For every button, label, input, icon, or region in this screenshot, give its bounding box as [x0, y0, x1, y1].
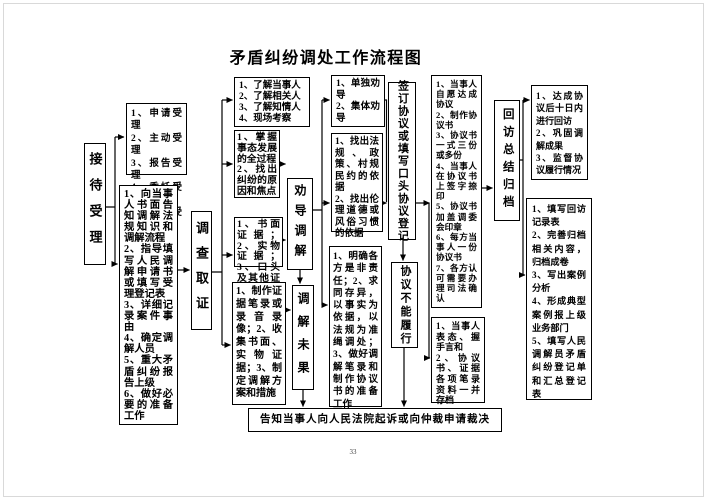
flowchart-title: 矛盾纠纷调处工作流程图: [196, 44, 456, 64]
investigation-goals-box: 1、掌握事态发展的全过程 2、找出纠纷的原因和焦点: [234, 130, 280, 198]
stage-investigation-box: 调查取证: [191, 211, 212, 330]
stage-followup-label: 回访总结归档: [501, 108, 513, 213]
stage-reception-box: 接待受理: [84, 143, 106, 265]
stage-followup-box: 回访总结归档: [494, 100, 520, 221]
reception-tasks-box: 1、向当事人书面告知调解法规知识和调解流程 2、指导填写人民调解申请书或填写受理…: [119, 185, 178, 425]
stage-sign-agreement-box: 签订协议或填写口头协议登记: [388, 82, 416, 240]
mediation-principles-box: 1、明确各方是非责任；2、求同存异，以事实为依据，以法规为准绳调处；3、做好调解…: [329, 246, 382, 407]
agreement-steps-box: 1、当事人自愿达成协议 2、制作协议书 3、协议书一式三份或多份 4、当事人在协…: [431, 75, 482, 308]
stage-mediation-failed-box: 调解未果: [292, 285, 314, 390]
archive-materials-box: 1、当事人表态、握手言和 2、协议书、证据各项笔录资料一并存档: [431, 317, 485, 403]
stage-persuasion-label: 劝导调解: [294, 184, 306, 264]
persuasion-methods-box: 1、单独劝导 2、集体劝导: [331, 75, 385, 127]
persuasion-basis-box: 1、找出法规、政策、村规民约的依据 2、找出伦理道德或风俗习惯的依据: [331, 133, 383, 232]
stage-reception-label: 接待受理: [89, 152, 102, 256]
stage-agreement-unfulfilled-box: 协议不能履行: [391, 262, 418, 348]
followup-tasks-box: 1、达成协议后十日内进行回访 2、巩固调解成果 3、监督协议履行情况: [531, 85, 588, 180]
archive-tasks-box: 1、填写回访记录表 2、完善归档相关内容，归档成卷 3、写出案例分析 4、形成典…: [526, 198, 592, 400]
litigation-notice-box: 告知当事人向人民法院起诉或向仲裁申请裁决: [248, 408, 502, 432]
stage-mediation-failed-label: 调解未果: [297, 292, 309, 384]
evidence-types-box: 1、书面证据；2、实物证据；3、口头及其他证据: [234, 217, 283, 267]
stage-persuasion-box: 劝导调解: [287, 178, 313, 270]
stage-sign-agreement-label: 签订协议或填写口头协议登记: [397, 80, 408, 243]
investigation-targets-box: 1、了解当事人 2、了解相关人 3、了解知情人 4、现场考察: [234, 77, 310, 127]
acceptance-methods-box: 1、申请受理 2、主动受理 3、报告受理 4、委托受理 5、指定受理: [126, 103, 187, 175]
evidence-preparation-box: 1、制作证据笔录或录音录像；2、收集书面、实物证据；3、制定调解方案和措施: [232, 282, 286, 405]
stage-agreement-unfulfilled-label: 协议不能履行: [399, 265, 410, 346]
stage-investigation-label: 调查取证: [195, 221, 208, 321]
page-number: 33: [330, 448, 376, 456]
